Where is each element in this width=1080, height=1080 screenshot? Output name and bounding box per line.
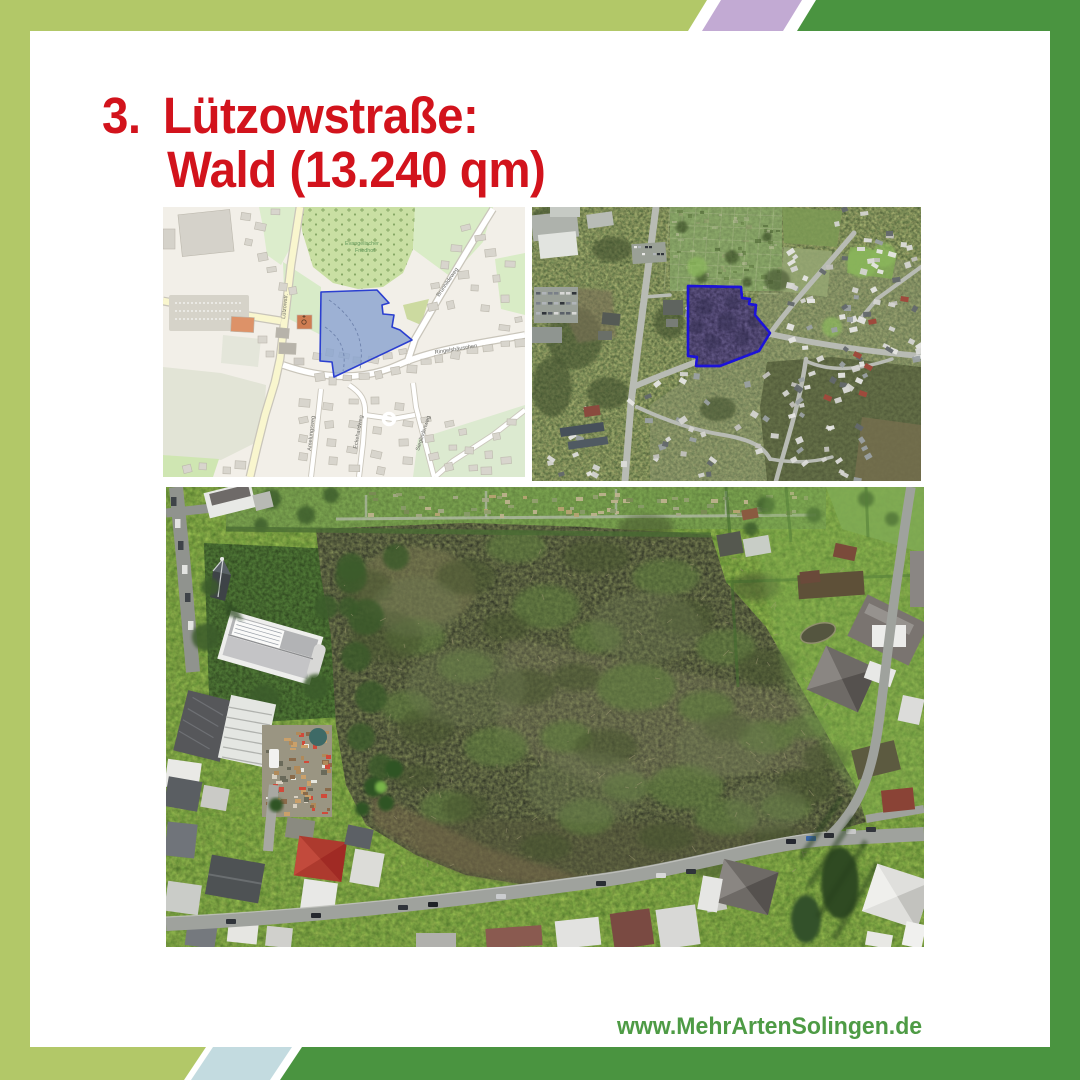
svg-text:Friedhof: Friedhof [355,248,375,254]
svg-text:Evangelischer: Evangelischer [345,241,379,247]
